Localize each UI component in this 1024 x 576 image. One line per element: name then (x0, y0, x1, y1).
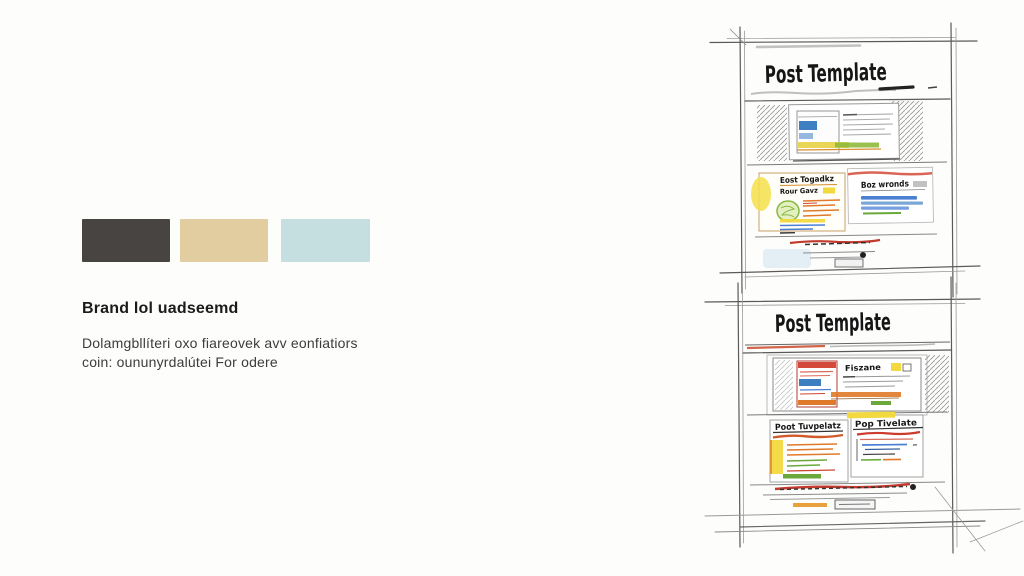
green-line (863, 213, 901, 214)
red-scribble (857, 432, 920, 435)
panel1-browser-mockup (757, 101, 923, 161)
panel1-card-left-title: Eost Togadkz (780, 174, 835, 185)
orange-footer-bar (798, 400, 836, 405)
yellow-highlight (847, 412, 895, 419)
sketch-svg: Post Template Eost Togadkz Rour G (685, 15, 1024, 555)
red-underline (747, 346, 825, 348)
panel1-title: Post Template (764, 58, 887, 89)
slide-canvas: { "page": { "background": "#fdfdfc" }, "… (0, 0, 1024, 576)
yellow-blob (751, 177, 771, 211)
orange-segment (793, 503, 827, 507)
blue-highlight-2 (861, 202, 923, 205)
brand-description: Dolamgbllíteri oxo fiareovek avv eonfiat… (82, 334, 358, 372)
green-bar (835, 143, 879, 148)
panel1-card-right: Boz wronds (848, 167, 934, 223)
blue-line (862, 445, 907, 446)
brand-description-line-2: coin: oununyrdalútei For odere (82, 353, 358, 372)
panel2-browser-mockup: Fiszane (767, 355, 949, 415)
blue-highlight-1 (861, 196, 917, 200)
yellow-vertical-bar (770, 440, 783, 474)
yellow-chip (891, 363, 901, 371)
post-template-sketch: Post Template Eost Togadkz Rour G (685, 15, 1024, 555)
orange-bar (831, 392, 901, 397)
small-green-bar (871, 401, 891, 405)
color-swatch-pale-blue (281, 219, 370, 262)
orange-scribble (773, 435, 843, 438)
color-swatch-charcoal (82, 219, 170, 262)
panel1-footer (755, 234, 937, 268)
blue-highlight-3 (861, 207, 909, 210)
yellow-chip (823, 188, 835, 194)
panel1-card-left-subtitle: Rour Gavz (780, 187, 818, 196)
panel2-title-group: Post Template (745, 308, 950, 348)
green-footer-bar (783, 474, 821, 479)
red-header-bar (798, 362, 836, 368)
panel2-title: Post Template (775, 308, 891, 338)
mini-blue-block (799, 121, 817, 130)
panel2-footer (750, 482, 945, 509)
blue-block (799, 379, 821, 386)
panel1-card-left: Eost Togadkz Rour Gavz (751, 173, 845, 233)
panel1-title-group: Post Template (751, 58, 937, 94)
panel2-card-left: Poot Tuvpelatz (770, 420, 848, 482)
panel2-card-right: Pop Tivelate (847, 412, 923, 477)
panel2-window-label: Fiszane (845, 363, 882, 373)
blue-wash (763, 249, 811, 268)
panel1-card-right-title: Boz wronds (861, 179, 909, 191)
red-footer-scribble (790, 240, 880, 243)
brand-description-line-1: Dolamgbllíteri oxo fiareovek avv eonfiat… (82, 334, 358, 353)
brand-heading: Brand lol uadseemd (82, 300, 239, 318)
color-swatch-sand (180, 219, 268, 262)
